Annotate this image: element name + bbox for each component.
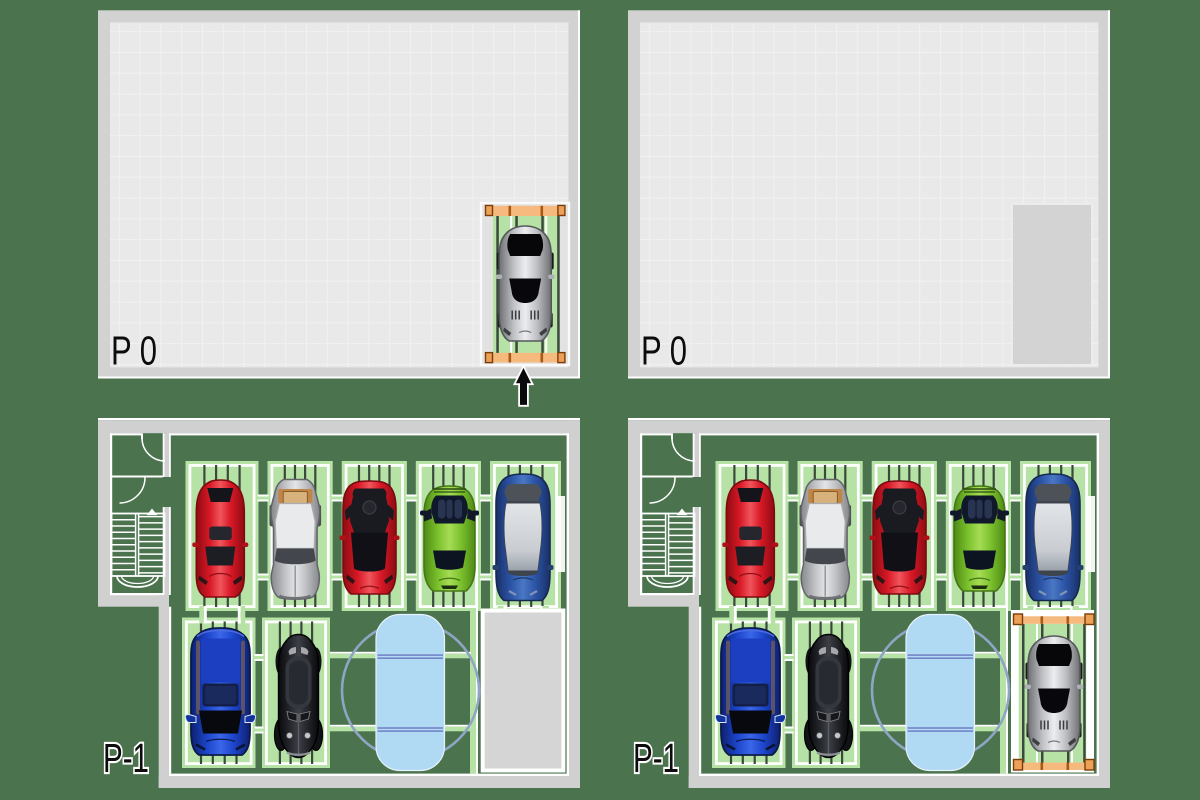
svg-text:P-1: P-1: [633, 735, 679, 781]
svg-text:P-1: P-1: [103, 735, 149, 781]
